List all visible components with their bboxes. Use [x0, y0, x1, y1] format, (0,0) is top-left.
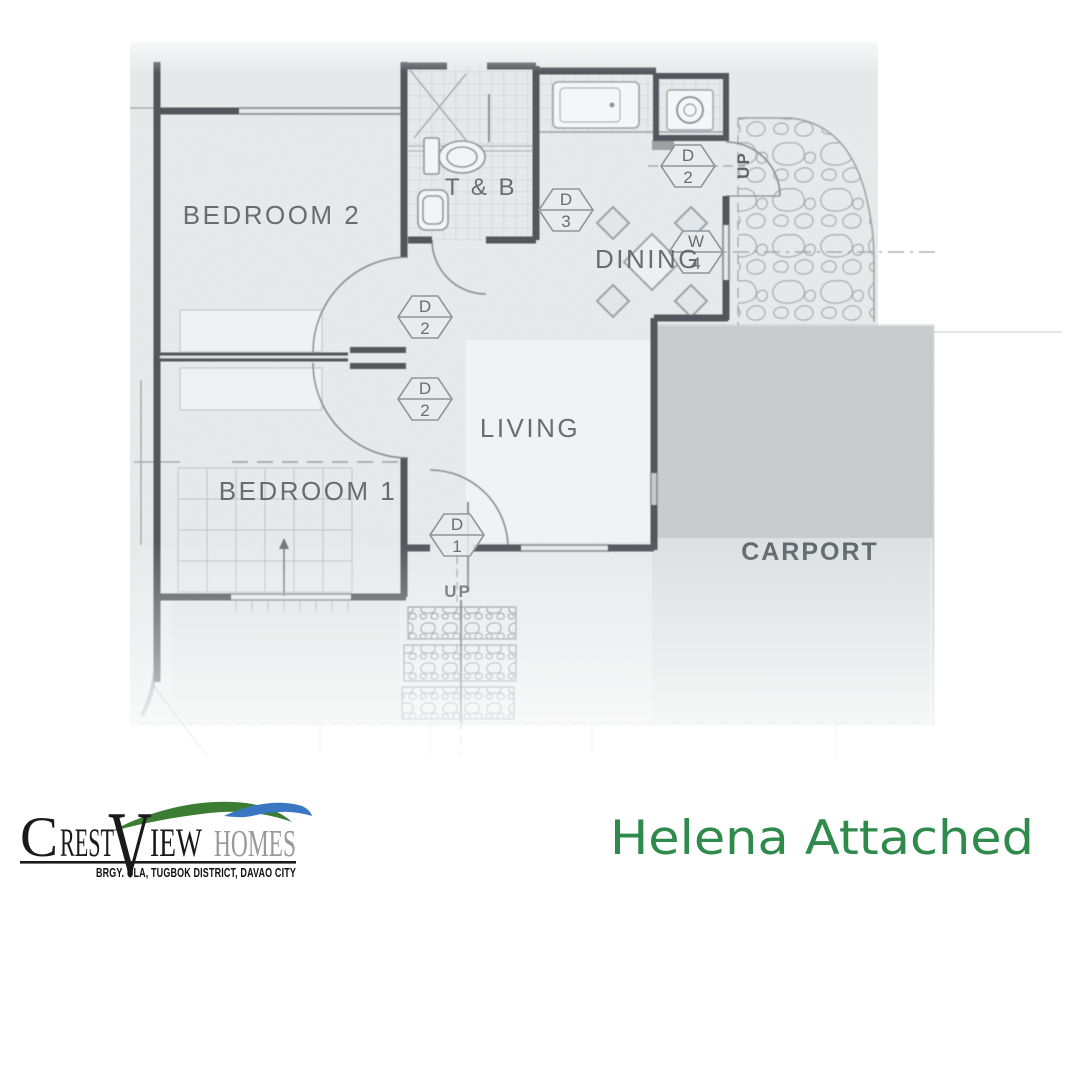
- hero-title: Helena Attached: [604, 800, 1064, 870]
- floor-plan: D 3 D 2 W 4 D 2 D 2 D 1 BEDROO: [0, 0, 1080, 790]
- living-label: LIVING: [480, 413, 580, 443]
- toilet-bowl: [439, 141, 485, 173]
- tag-letter: D: [560, 190, 572, 209]
- up-path-label: UP: [734, 151, 753, 179]
- kitchen-sink: [553, 82, 639, 128]
- wordmark-homes: HOMES: [214, 823, 296, 865]
- wordmark-v: V: [108, 793, 152, 896]
- bedroom2-label: BEDROOM 2: [183, 200, 362, 230]
- wordmark-iew: IEW: [150, 820, 202, 865]
- brand-logo: C REST V IEW HOMES BRGY. ULA, TUGBOK DIS…: [14, 786, 314, 896]
- dining-label: DINING: [595, 244, 701, 274]
- tag-number: 2: [420, 319, 429, 338]
- poster: D 3 D 2 W 4 D 2 D 2 D 1 BEDROO: [0, 0, 1080, 1080]
- carport-shade-dark: [652, 326, 933, 538]
- brand-tagline: BRGY. ULA, TUGBOK DISTRICT, DAVAO CITY: [96, 866, 296, 880]
- tag-number: 2: [683, 168, 692, 187]
- hero-title-text: Helena Attached: [610, 811, 1034, 866]
- tag-letter: D: [419, 297, 431, 316]
- wordmark-c: C: [20, 806, 58, 869]
- wordmark-rest: REST: [60, 820, 114, 865]
- toilet-tank: [424, 138, 439, 174]
- tag-number: 3: [561, 212, 570, 231]
- tag-letter: D: [419, 379, 431, 398]
- sink-drain: [610, 103, 615, 108]
- tag-letter: D: [682, 146, 694, 165]
- tnb-label: T & B: [445, 174, 517, 201]
- tag-number: 2: [420, 401, 429, 420]
- counter-cap: [652, 140, 674, 150]
- tag-letter: D: [451, 515, 463, 534]
- bedroom1-label: BEDROOM 1: [219, 476, 398, 506]
